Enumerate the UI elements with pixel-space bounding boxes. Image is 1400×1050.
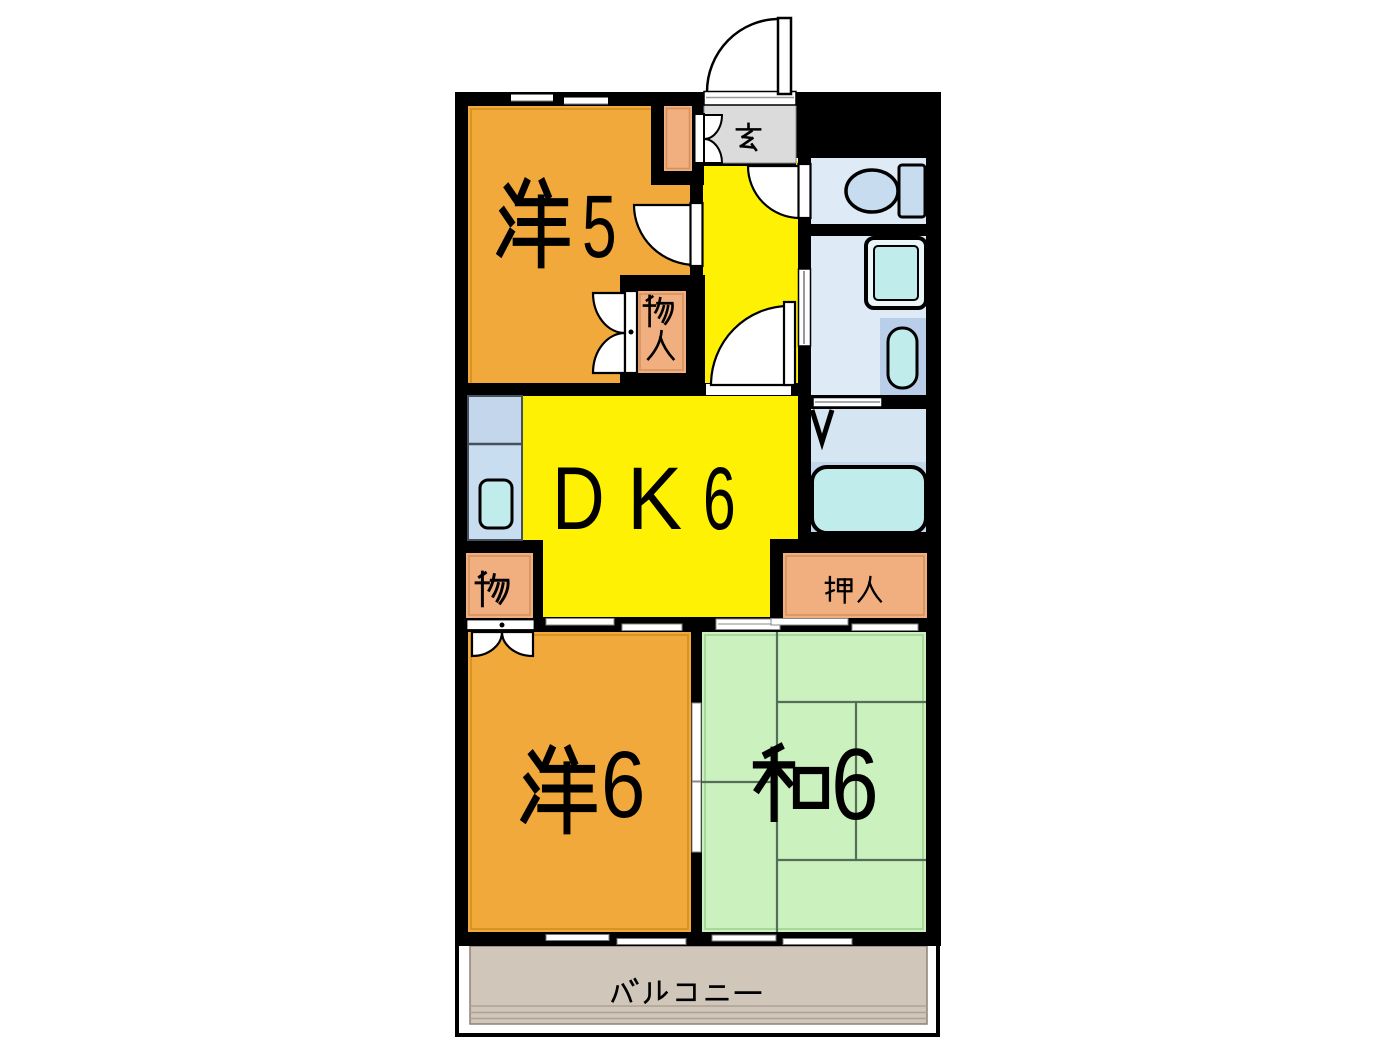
- svg-text:K: K: [627, 449, 682, 548]
- svg-text:6: 6: [703, 449, 736, 548]
- svg-text:6: 6: [831, 727, 879, 840]
- svg-text:5: 5: [582, 177, 617, 277]
- svg-text:D: D: [552, 449, 605, 549]
- svg-text:6: 6: [601, 731, 645, 837]
